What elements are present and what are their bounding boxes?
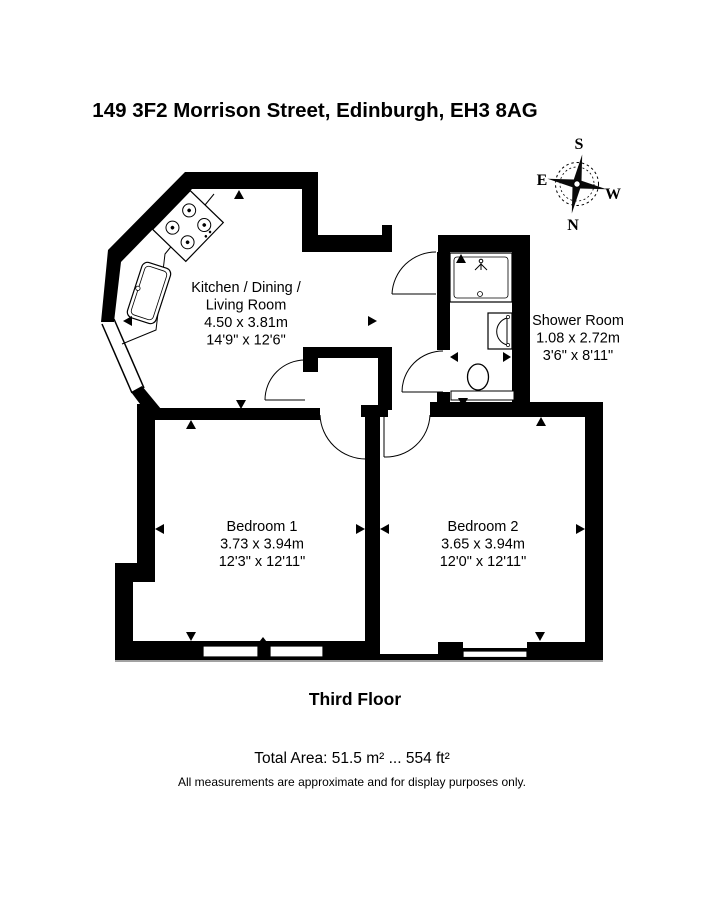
wall — [150, 408, 320, 420]
bedroom2-window — [463, 651, 527, 658]
shower-room-size-imperial: 3'6" x 8'11" — [543, 348, 613, 364]
bedroom1-size-metric: 3.73 x 3.94m — [220, 537, 304, 553]
floorplan-svg: S E W N 149 3F2 Morrison Street, Edinbur… — [0, 0, 706, 900]
total-area-label: Total Area: 51.5 m² ... 554 ft² — [254, 750, 450, 767]
wall — [437, 252, 450, 350]
compass-south-label: S — [575, 136, 584, 153]
compass-rose: S E W N — [537, 136, 621, 234]
compass-east-label: E — [537, 172, 548, 189]
sink-icon — [126, 261, 172, 325]
bedroom2-size-imperial: 12'0" x 12'11" — [440, 554, 527, 570]
shower-room-name: Shower Room — [532, 313, 624, 329]
bedroom1-door-arc — [320, 415, 366, 459]
bedroom1-name: Bedroom 1 — [227, 519, 298, 535]
shower-room-label: Shower Room 1.08 x 2.72m 3'6" x 8'11" — [532, 313, 624, 364]
floor-label: Third Floor — [309, 689, 402, 709]
toilet-icon — [451, 364, 514, 400]
wall — [303, 347, 318, 372]
disclaimer-text: All measurements are approximate and for… — [178, 775, 526, 789]
bedroom1-window — [203, 646, 258, 657]
wall — [382, 225, 392, 252]
kitchen-name-line1: Kitchen / Dining / — [191, 280, 302, 296]
page-title: 149 3F2 Morrison Street, Edinburgh, EH3 … — [92, 99, 537, 122]
bedroom2-name: Bedroom 2 — [448, 519, 519, 535]
kitchen-label: Kitchen / Dining / Living Room 4.50 x 3.… — [191, 280, 302, 349]
bedroom2-label: Bedroom 2 3.65 x 3.94m 12'0" x 12'11" — [440, 519, 527, 570]
wall — [430, 402, 603, 417]
shower-room-door-arc — [402, 351, 443, 392]
compass-north-label: N — [567, 217, 579, 234]
wall — [137, 404, 155, 563]
shower-room-size-metric: 1.08 x 2.72m — [536, 331, 620, 347]
wall — [185, 172, 317, 189]
kitchen-size-metric: 4.50 x 3.81m — [204, 315, 288, 331]
bedroom2-size-metric: 3.65 x 3.94m — [441, 537, 525, 553]
bedroom1-label: Bedroom 1 3.73 x 3.94m 12'3" x 12'11" — [219, 519, 306, 570]
compass-west-label: W — [605, 186, 621, 203]
washbasin-icon — [488, 313, 512, 349]
wall — [365, 415, 380, 660]
floorplan-page: S E W N 149 3F2 Morrison Street, Edinbur… — [0, 0, 706, 900]
wall — [378, 347, 392, 410]
kitchen-size-imperial: 14'9" x 12'6" — [206, 333, 286, 349]
wall — [585, 402, 603, 660]
wall — [380, 654, 440, 660]
kitchen-name-line2: Living Room — [206, 298, 287, 314]
bedroom1-window — [270, 646, 323, 657]
bedroom1-size-imperial: 12'3" x 12'11" — [219, 554, 306, 570]
bedroom2-door-arc — [384, 415, 430, 457]
wall — [438, 642, 463, 660]
wall — [318, 235, 385, 252]
kitchen-door-arc — [265, 360, 305, 400]
kitchen-window — [102, 319, 144, 393]
wall — [512, 235, 530, 417]
wall — [302, 172, 318, 252]
entrance-door-arc — [392, 252, 436, 294]
